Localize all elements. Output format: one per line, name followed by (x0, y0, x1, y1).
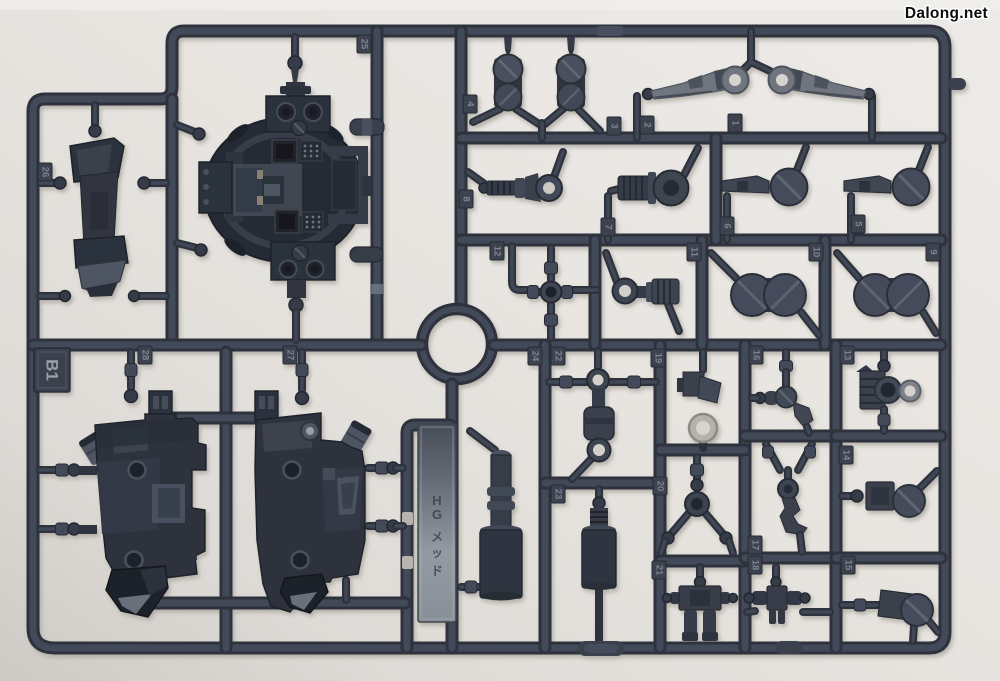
svg-text:メ: メ (431, 530, 443, 544)
svg-text:3: 3 (609, 123, 620, 128)
svg-text:10: 10 (811, 247, 822, 258)
svg-text:21: 21 (654, 565, 665, 576)
svg-text:22: 22 (553, 351, 564, 362)
svg-text:27: 27 (285, 350, 296, 361)
svg-text:ッ: ッ (431, 546, 443, 560)
svg-text:18: 18 (750, 560, 761, 571)
svg-text:Dalong.net: Dalong.net (905, 5, 988, 22)
svg-text:4: 4 (465, 101, 476, 107)
svg-text:16: 16 (751, 350, 762, 361)
svg-text:12: 12 (492, 246, 503, 257)
svg-text:14: 14 (841, 450, 852, 461)
svg-text:1: 1 (730, 120, 741, 126)
svg-text:9: 9 (928, 249, 939, 254)
svg-text:15: 15 (843, 560, 854, 571)
svg-text:G: G (432, 507, 442, 522)
svg-text:B1: B1 (43, 359, 62, 381)
svg-text:13: 13 (842, 350, 853, 361)
svg-text:8: 8 (461, 196, 472, 201)
svg-text:6: 6 (722, 223, 733, 228)
svg-text:2: 2 (642, 122, 653, 127)
svg-text:11: 11 (689, 247, 700, 258)
svg-text:28: 28 (140, 350, 151, 361)
svg-text:20: 20 (655, 481, 666, 492)
svg-text:26: 26 (40, 167, 51, 178)
svg-text:19: 19 (653, 353, 664, 364)
svg-text:23: 23 (553, 489, 564, 500)
svg-text:H: H (432, 493, 441, 508)
svg-text:7: 7 (603, 224, 614, 229)
svg-text:ド: ド (431, 564, 443, 578)
svg-text:5: 5 (853, 221, 864, 227)
svg-text:17: 17 (750, 540, 761, 551)
svg-text:24: 24 (530, 351, 541, 362)
svg-text:25: 25 (359, 39, 370, 50)
